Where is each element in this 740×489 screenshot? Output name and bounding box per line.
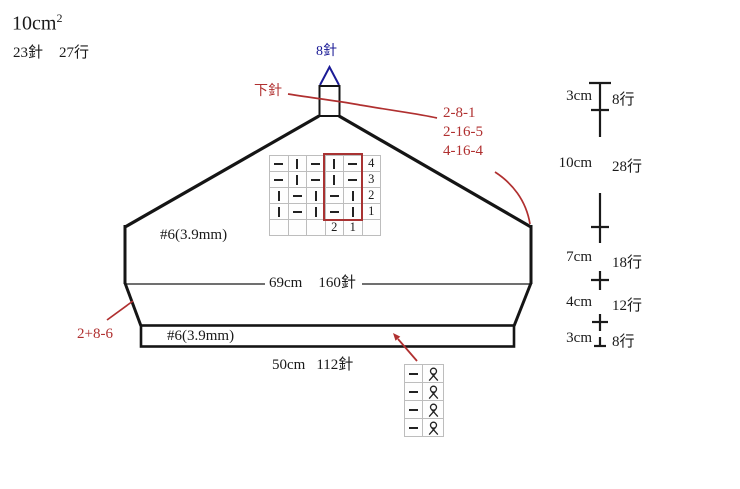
purl-symbol [311,179,320,181]
row-number: 3 [363,172,382,188]
twisted-stitch-icon [427,421,440,435]
chart-cell [405,383,423,401]
body-width-cm: 69cm [269,275,302,292]
chart-cell [289,188,308,204]
knit-symbol [333,175,335,185]
ruler-length-2: 7cm [547,249,592,266]
body-needle-label: #6(3.9mm) [160,227,227,244]
band-width-stitches: 112針 [316,357,353,373]
chart-cell [423,401,444,419]
band-stitch-chart [404,364,444,437]
chart-cell [307,156,326,172]
band-needle-label: #6(3.9mm) [167,328,234,345]
chart-cell [405,365,423,383]
chart-cell [270,156,289,172]
chart-cell [289,204,308,220]
column-number [270,220,289,236]
chart-cell [289,172,308,188]
purl-symbol [348,179,357,181]
chart-cell [344,172,363,188]
decrease-note-1: 2-8-1 [443,104,483,123]
gauge-exponent: 2 [56,11,62,25]
knit-symbol [333,159,335,169]
chart-cell [289,156,308,172]
row-number: 4 [363,156,382,172]
purl-symbol [409,373,418,375]
chart-cell [307,188,326,204]
band-width-label: 50cm112針 [272,357,353,374]
chart-cell [326,188,345,204]
diagram-linework [0,0,740,489]
knit-symbol [315,207,317,217]
ruler-rows-3: 12行 [612,294,642,315]
purl-symbol [311,163,320,165]
purl-symbol [274,179,283,181]
row-number: 1 [363,204,382,220]
band-width-cm: 50cm [272,357,305,374]
chart-cell [326,172,345,188]
decrease-note-2: 2-16-5 [443,123,483,142]
chart-cell [423,419,444,437]
gauge-stitches: 23針 [13,45,43,62]
ruler-length-4: 3cm [547,330,592,347]
column-number [289,220,308,236]
gauge-title: 10cm2 [12,12,62,36]
crown-stitches-label: 8針 [316,44,337,60]
right-taper-line [514,283,531,326]
crown-triangle [320,67,339,85]
chart-cell [405,401,423,419]
body-width-stitches: 160針 [318,275,356,291]
corner-cell [363,220,382,236]
band-increase-note: 2+8-6 [77,326,113,343]
purl-symbol [330,195,339,197]
body-width-label: 69cm160針 [269,275,356,292]
column-number [307,220,326,236]
column-number: 1 [344,220,363,236]
knit-symbol [296,175,298,185]
chart-cell [270,172,289,188]
main-stitch-chart: 432121 [269,155,381,236]
ruler-length-1: 10cm [547,155,592,172]
purl-symbol [293,211,302,213]
purl-symbol [293,195,302,197]
gauge-values: 23針27行 [13,45,89,62]
row-number: 2 [363,188,382,204]
chart-cell [307,172,326,188]
vertical-ruler [589,83,611,347]
ruler-length-3: 4cm [547,294,592,311]
chart-cell [270,204,289,220]
purl-symbol [274,163,283,165]
purl-symbol [409,391,418,393]
purl-symbol [409,427,418,429]
gauge-rows: 27行 [59,45,89,61]
chart-cell [307,204,326,220]
knitting-pattern-diagram: 10cm2 23針27行 8針 下針 2-8-1 2-16-5 4-16-4 #… [0,0,740,489]
chart-cell [270,188,289,204]
twisted-stitch-icon [427,367,440,381]
chart-cell [405,419,423,437]
knit-symbol [352,191,354,201]
decrease-notes: 2-8-1 2-16-5 4-16-4 [443,104,483,161]
chart-cell [423,383,444,401]
chart-cell [326,156,345,172]
ruler-rows-4: 8行 [612,330,635,351]
twisted-stitch-icon [427,385,440,399]
band-note-leader-line [107,301,133,320]
purl-symbol [348,163,357,165]
gauge-size: 10cm [12,13,56,35]
ruler-rows-1: 28行 [612,155,642,176]
column-number: 2 [326,220,345,236]
twisted-stitch-icon [427,403,440,417]
ruler-rows-2: 18行 [612,251,642,272]
knit-symbol [352,207,354,217]
decrease-note-3: 4-16-4 [443,142,483,161]
knit-stitch-leader-line [288,94,437,118]
chart-cell [344,204,363,220]
chart-cell [423,365,444,383]
chart-cell [326,204,345,220]
knit-symbol [296,159,298,169]
knit-stitch-label: 下針 [254,84,282,100]
knit-symbol [278,191,280,201]
knit-symbol [278,207,280,217]
purl-symbol [330,211,339,213]
purl-symbol [409,409,418,411]
chart-cell [344,188,363,204]
chart-cell [344,156,363,172]
knit-symbol [315,191,317,201]
ruler-rows-0: 8行 [612,88,635,109]
ruler-length-0: 3cm [547,88,592,105]
